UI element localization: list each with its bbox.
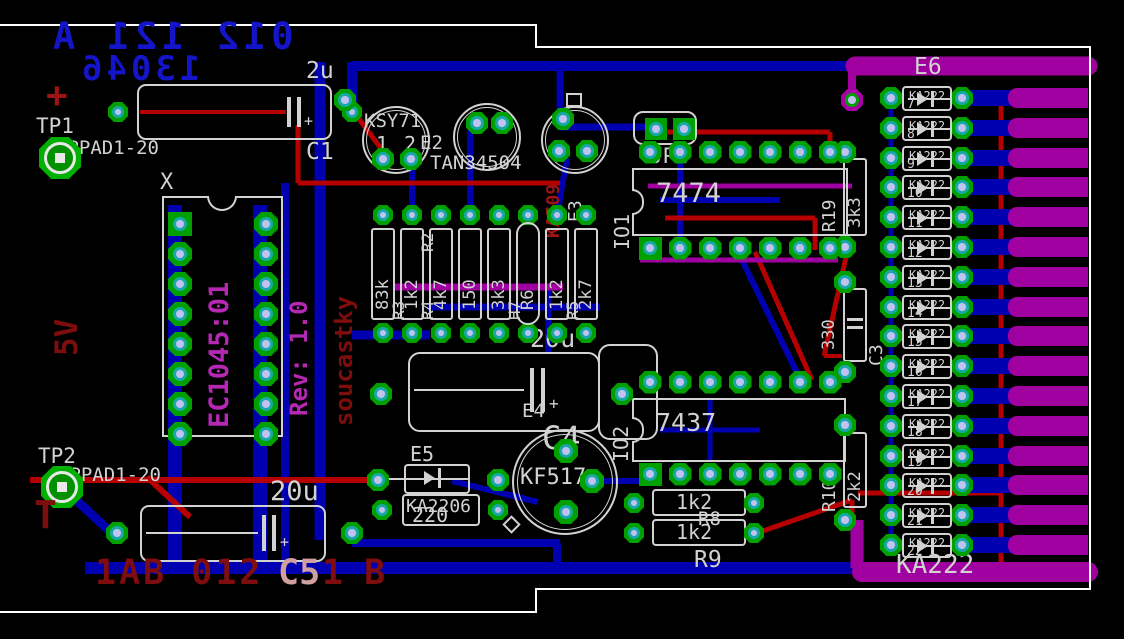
- pad-hole: [409, 212, 416, 219]
- diode-8-ref-label: 8: [907, 127, 915, 142]
- pad-ring: [955, 300, 969, 314]
- io1-pad: [759, 141, 782, 164]
- pad-ring: [338, 93, 352, 107]
- pad-hole: [958, 94, 965, 101]
- pad-hole: [887, 422, 894, 429]
- pad-hole: [958, 303, 965, 310]
- pad-ring: [955, 270, 969, 284]
- pad-ring: [377, 209, 389, 221]
- pad-hole: [736, 244, 744, 252]
- diode-13-ref-label: 13: [907, 276, 923, 291]
- socket-pad: [168, 302, 192, 326]
- pad-ring: [673, 467, 687, 481]
- pad-hole: [377, 390, 384, 397]
- pad: [400, 148, 422, 170]
- pad-hole: [176, 220, 184, 228]
- pad-ring: [110, 526, 124, 540]
- c3-value-label: 330: [821, 290, 838, 350]
- e6-ref-label: E6: [914, 56, 942, 79]
- diode-pad-anode: [880, 504, 902, 526]
- component-c1-body[interactable]: [137, 84, 332, 140]
- pad-hole: [796, 470, 804, 478]
- io1-part-label: 7474: [656, 180, 721, 207]
- pad-hole: [887, 332, 894, 339]
- edge-connector-finger-9: [1008, 326, 1088, 346]
- pad-ring: [559, 444, 574, 459]
- pad-hole: [958, 243, 965, 250]
- resistor-pad: [460, 205, 480, 225]
- e2-ref-label: E2: [420, 134, 443, 153]
- pad-hole: [262, 220, 270, 228]
- resistor-pad: [402, 323, 422, 343]
- pad: [548, 140, 570, 162]
- pad-ring: [673, 241, 687, 255]
- pad-hole: [958, 362, 965, 369]
- pad-ring: [955, 329, 969, 343]
- pad-ring: [733, 145, 747, 159]
- component-diode-11[interactable]: KA22211: [902, 205, 952, 230]
- pad-ring: [371, 473, 385, 487]
- pad-ring: [884, 508, 898, 522]
- pad-ring: [493, 327, 505, 339]
- resistor-pad: [431, 323, 451, 343]
- pad: [372, 500, 392, 520]
- socket-pad: [168, 422, 192, 446]
- resistor-6-ref-label: H7: [507, 252, 523, 320]
- pad-hole: [498, 119, 505, 126]
- pad-hole: [848, 96, 855, 103]
- io1-pad: [669, 141, 692, 164]
- socket-pad: [254, 332, 278, 356]
- socket-part-label: EC1045:01: [206, 218, 233, 428]
- pad-hole: [766, 148, 774, 156]
- pad-ring: [884, 389, 898, 403]
- resistor-pad: [518, 323, 538, 343]
- socket-pad: [168, 272, 192, 296]
- pad-ring: [559, 505, 574, 520]
- pad-ring: [677, 122, 691, 136]
- io1-pad: [699, 141, 722, 164]
- pad-hole: [559, 115, 566, 122]
- pad-ring: [955, 359, 969, 373]
- c1-plate: [287, 97, 291, 127]
- pad-hole: [583, 212, 590, 219]
- component-c3-body[interactable]: [843, 288, 867, 362]
- pad-hole: [958, 541, 965, 548]
- pad-ring: [884, 538, 898, 552]
- pad-hole: [841, 278, 848, 285]
- pad-hole: [958, 511, 965, 518]
- pad-ring: [552, 144, 566, 158]
- pad-ring: [884, 151, 898, 165]
- io2-pad: [669, 463, 692, 486]
- pad-hole: [562, 447, 570, 455]
- pad-hole: [706, 378, 714, 386]
- pad: [466, 112, 488, 134]
- pad-ring: [748, 497, 760, 509]
- edge-connector-finger-8: [1008, 297, 1088, 317]
- edge-connector-finger-3: [1008, 148, 1088, 168]
- pad-ring: [585, 474, 600, 489]
- power-5v-label: 5V: [52, 292, 83, 356]
- pad-hole: [646, 148, 654, 156]
- diode-pad-anode: [880, 206, 902, 228]
- pad-ring: [406, 209, 418, 221]
- socket-pad: [168, 212, 192, 236]
- socket-pad: [254, 392, 278, 416]
- component-diode-19[interactable]: KA22219: [902, 444, 952, 469]
- pad-hole: [631, 500, 638, 507]
- pad-ring: [955, 389, 969, 403]
- io2-pad: [759, 463, 782, 486]
- pad-ring: [259, 397, 274, 412]
- bottom-doc-text-c: 1 B: [322, 556, 385, 591]
- kf517-part-label: KF517: [520, 467, 586, 489]
- diode-22-ref-label: 22: [907, 544, 923, 559]
- socket-pad: [168, 362, 192, 386]
- pad-ring: [955, 449, 969, 463]
- c5-plate: [272, 515, 276, 551]
- pad-ring: [763, 375, 777, 389]
- pad-ring: [703, 241, 717, 255]
- r9-ref-label: R9: [694, 549, 722, 572]
- c1-ref-label: C1: [306, 141, 334, 164]
- component-diode-20[interactable]: KA22220: [902, 473, 952, 498]
- diode-pad-anode: [880, 117, 902, 139]
- io2-pad: [639, 371, 662, 394]
- pad-hole: [676, 378, 684, 386]
- plus-polarity-label: +: [46, 78, 68, 114]
- pad-ring: [955, 151, 969, 165]
- pad: [372, 148, 394, 170]
- socket-pad: [168, 332, 192, 356]
- io1-pad: [669, 237, 692, 260]
- pad-hole: [583, 330, 590, 337]
- diode-pad-anode: [880, 385, 902, 407]
- diode-15-ref-label: 15: [907, 335, 923, 350]
- pad-hole: [176, 370, 184, 378]
- pad-hole: [555, 147, 562, 154]
- pad-hole: [958, 452, 965, 459]
- diode-pad-anode: [880, 415, 902, 437]
- component-diode-13[interactable]: KA22213: [902, 265, 952, 290]
- diode-pad-cathode: [951, 117, 973, 139]
- diode-pad-anode: [880, 445, 902, 467]
- pad-hole: [958, 183, 965, 190]
- pad-ring: [259, 367, 274, 382]
- pad-ring: [406, 327, 418, 339]
- pad-hole: [887, 362, 894, 369]
- pad: [624, 493, 644, 513]
- component-diode-7[interactable]: KA2227: [902, 86, 952, 111]
- diode-pad-cathode: [951, 355, 973, 377]
- io2-pad: [789, 371, 812, 394]
- io2-pad: [789, 463, 812, 486]
- pad-hole: [467, 330, 474, 337]
- pad-ring: [673, 375, 687, 389]
- pad-hole: [374, 476, 381, 483]
- io2-pad: [819, 463, 842, 486]
- diode-pad-anode: [880, 296, 902, 318]
- socket-pad: [254, 212, 278, 236]
- pad-hole: [583, 147, 590, 154]
- pad-ring: [703, 467, 717, 481]
- io2-pad: [819, 371, 842, 394]
- jp1-pad-1: [645, 118, 667, 140]
- pad-ring: [522, 327, 534, 339]
- resistor-3-ref-label: R4: [420, 252, 436, 320]
- pad-ring: [955, 210, 969, 224]
- pad-hole: [379, 155, 386, 162]
- pad-hole: [751, 500, 758, 507]
- pad-ring: [823, 375, 837, 389]
- pad-hole: [736, 470, 744, 478]
- pad-hole: [496, 212, 503, 219]
- pad-ring: [649, 122, 663, 136]
- pad: [491, 112, 513, 134]
- pad: [834, 271, 856, 293]
- pad-hole: [438, 212, 445, 219]
- io2-part-label: 7437: [656, 410, 716, 435]
- socket-pad: [254, 362, 278, 386]
- pad-ring: [955, 478, 969, 492]
- component-diode-17[interactable]: KA22217: [902, 384, 952, 409]
- socket-pad: [168, 392, 192, 416]
- pad-hole: [676, 148, 684, 156]
- diode-pad-cathode: [951, 296, 973, 318]
- diode-pad-cathode: [951, 266, 973, 288]
- pad-ring: [845, 93, 859, 107]
- pad-ring: [955, 121, 969, 135]
- pad-ring: [551, 327, 563, 339]
- c5-value-label: 20u: [270, 478, 319, 505]
- io2-pad: [759, 371, 782, 394]
- pad-hole: [887, 213, 894, 220]
- diode-18-ref-label: 18: [907, 425, 923, 440]
- c1-value-label: 2u: [306, 60, 334, 83]
- pad-hole: [409, 330, 416, 337]
- pad-ring: [884, 180, 898, 194]
- component-diode-9[interactable]: KA2229: [902, 146, 952, 171]
- pad-ring: [793, 467, 807, 481]
- pad-ring: [522, 209, 534, 221]
- diode-pad-anode: [880, 87, 902, 109]
- pad-ring: [173, 337, 188, 352]
- e3-tab: [566, 93, 582, 107]
- resistor-pad: [547, 323, 567, 343]
- pad-hole: [113, 529, 120, 536]
- resistor-1-value-label: 83k: [375, 238, 392, 310]
- pad-ring: [377, 327, 389, 339]
- io2-pad: [669, 371, 692, 394]
- socket-pad: [254, 242, 278, 266]
- io1-pad: [819, 141, 842, 164]
- pad: [106, 522, 128, 544]
- diode-20-ref-label: 20: [907, 484, 923, 499]
- bottom-doc-text-a: 1AB 012: [95, 556, 264, 591]
- pad-ring: [793, 375, 807, 389]
- pad-hole: [958, 273, 965, 280]
- pad-hole: [176, 310, 184, 318]
- component-diode-18[interactable]: KA22218: [902, 414, 952, 439]
- diode-pad-anode: [880, 325, 902, 347]
- pad-hole: [262, 430, 270, 438]
- pad-hole: [887, 392, 894, 399]
- pad-hole: [554, 330, 561, 337]
- pad-hole: [496, 330, 503, 337]
- pad-ring: [884, 359, 898, 373]
- io1-pad: [819, 237, 842, 260]
- soucastky-label: soucastky: [332, 226, 356, 426]
- diode-pad-anode: [880, 266, 902, 288]
- pad-hole: [958, 481, 965, 488]
- io1-pad: [639, 141, 662, 164]
- pad-ring: [884, 478, 898, 492]
- edge-connector-finger-11: [1008, 386, 1088, 406]
- pad-ring: [404, 152, 418, 166]
- resistor-pad: [576, 205, 596, 225]
- socket-pad: [254, 272, 278, 296]
- pad-ring: [173, 427, 188, 442]
- pad-hole: [841, 148, 848, 155]
- io1-pad: [789, 141, 812, 164]
- pad-ring: [491, 473, 505, 487]
- diode-pad-cathode: [951, 147, 973, 169]
- c1-plus-mark: +: [304, 114, 313, 129]
- pad-hole: [796, 378, 804, 386]
- diode-pad-anode: [880, 176, 902, 198]
- component-diode-22[interactable]: KA22222: [902, 533, 952, 558]
- e5-value-label: 220: [412, 505, 448, 525]
- c5-lead-line: [146, 532, 258, 534]
- tp1-testpad[interactable]: [39, 137, 81, 179]
- io1-pad: [639, 237, 662, 260]
- pad: [554, 439, 578, 463]
- edge-connector-finger-1: [1008, 88, 1088, 108]
- diode-pad-cathode: [951, 325, 973, 347]
- pad-hole: [341, 96, 348, 103]
- diode-19-ref-label: 19: [907, 455, 923, 470]
- diode-11-ref-label: 11: [907, 216, 923, 231]
- diode-pad-anode: [880, 147, 902, 169]
- edge-connector-finger-16: [1008, 535, 1088, 555]
- diode-12-ref-label: 12: [907, 246, 923, 261]
- pad-ring: [259, 247, 274, 262]
- via: [841, 89, 863, 111]
- diode-pad-anode: [880, 534, 902, 556]
- pad-ring: [748, 527, 760, 539]
- pad-ring: [884, 91, 898, 105]
- edge-connector-finger-6: [1008, 237, 1088, 257]
- pad-ring: [551, 209, 563, 221]
- pad-hole: [887, 273, 894, 280]
- pad-hole: [841, 243, 848, 250]
- pad-ring: [173, 307, 188, 322]
- pad-hole: [826, 470, 834, 478]
- e5-diode-triangle: [424, 471, 435, 485]
- pad-ring: [823, 145, 837, 159]
- jp1-pad-2: [673, 118, 695, 140]
- pad-ring: [376, 504, 388, 516]
- component-diode-16[interactable]: KA22216: [902, 354, 952, 379]
- pad: [370, 383, 392, 405]
- pad-ring: [173, 397, 188, 412]
- io1-pad: [729, 237, 752, 260]
- resistor-pad: [489, 323, 509, 343]
- pad-hole: [554, 212, 561, 219]
- pad-ring: [955, 419, 969, 433]
- socket-pad: [168, 242, 192, 266]
- socket-pad: [254, 302, 278, 326]
- r19-value-label: 3k3: [847, 166, 864, 228]
- component-diode-15[interactable]: KA22215: [902, 324, 952, 349]
- diode-16-ref-label: 16: [907, 365, 923, 380]
- socket-x-label: X: [160, 172, 173, 194]
- tp1-ring: [44, 142, 76, 174]
- edge-connector-finger-15: [1008, 505, 1088, 525]
- pad-ring: [259, 427, 274, 442]
- pad-ring: [259, 217, 274, 232]
- pad-hole: [176, 400, 184, 408]
- diode-10-ref-label: 10: [907, 186, 923, 201]
- t-label: T: [34, 496, 57, 534]
- component-diode-8[interactable]: KA2228: [902, 116, 952, 141]
- diode-pad-cathode: [951, 87, 973, 109]
- diode-17-ref-label: 17: [907, 395, 923, 410]
- pad-hole: [380, 330, 387, 337]
- pad-hole: [826, 244, 834, 252]
- io2-pad: [729, 463, 752, 486]
- e4-plus-mark: +: [549, 396, 559, 412]
- pad-hole: [676, 244, 684, 252]
- io2-pad: [639, 463, 662, 486]
- component-diode-21[interactable]: KA22221: [902, 503, 952, 528]
- pad-ring: [435, 327, 447, 339]
- pad-ring: [955, 91, 969, 105]
- tp1-label: TP1: [36, 116, 74, 137]
- pad-ring: [259, 277, 274, 292]
- pad-hole: [826, 378, 834, 386]
- pad-hole: [887, 541, 894, 548]
- pad-hole: [887, 94, 894, 101]
- pad-ring: [173, 277, 188, 292]
- socket-pad: [254, 422, 278, 446]
- pad-hole: [766, 244, 774, 252]
- component-diode-14[interactable]: KA22214: [902, 295, 952, 320]
- pad-ring: [628, 497, 640, 509]
- pad-ring: [376, 152, 390, 166]
- pad-hole: [348, 529, 355, 536]
- pad-hole: [618, 390, 625, 397]
- resistor-5-value-label: 3k3: [491, 238, 508, 310]
- pad-hole: [176, 250, 184, 258]
- pad-ring: [793, 241, 807, 255]
- component-diode-12[interactable]: KA22212: [902, 235, 952, 260]
- diode-pad-cathode: [951, 445, 973, 467]
- resistor-pad: [489, 205, 509, 225]
- pad-hole: [262, 400, 270, 408]
- component-diode-10[interactable]: KA22210: [902, 175, 952, 200]
- pad-hole: [646, 378, 654, 386]
- pad: [744, 523, 764, 543]
- diode-pad-cathode: [951, 534, 973, 556]
- diode-7-ref-label: 7: [907, 97, 915, 112]
- pad-ring: [884, 240, 898, 254]
- pad-ring: [580, 327, 592, 339]
- pad: [624, 523, 644, 543]
- resistor-7-value-label: 1k2: [549, 238, 566, 310]
- r19-ref-label: R19: [821, 162, 839, 232]
